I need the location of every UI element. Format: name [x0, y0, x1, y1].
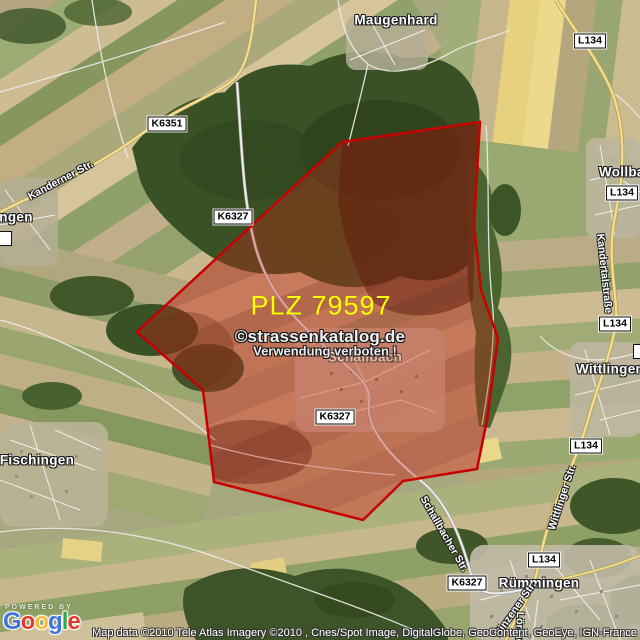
town-label-wittlingen: Wittlingen	[576, 362, 640, 377]
satellite-map-viewport[interactable]: Maugenhard Wollbach Wittlingen Fischinge…	[0, 0, 640, 640]
town-label-partial-ingen: ingen	[0, 210, 33, 225]
village-wittlingen	[570, 342, 640, 437]
road-label-l134-wollbach: L134	[606, 186, 638, 201]
road-label-l134-mid: L134	[599, 317, 631, 332]
town-label-ruemmingen: Rümmingen	[499, 576, 580, 591]
town-label-wollbach: Wollbach	[599, 165, 640, 180]
google-logo[interactable]: Google	[3, 608, 80, 636]
town-label-fischingen: Fischingen	[0, 453, 74, 468]
google-logo-letter: g	[48, 608, 62, 635]
plz-area-title: PLZ 79597	[250, 291, 391, 322]
road-label-k6327-north: K6327	[214, 210, 253, 225]
road-label-l134-wittlingen: L134	[570, 439, 602, 454]
map-attribution: Map data ©2010 Tele Atlas Imagery ©2010 …	[92, 627, 637, 639]
road-label-k6327-south: K6327	[448, 576, 487, 591]
watermark-notice: Verwendung verboten !	[253, 344, 397, 359]
google-logo-letter: G	[3, 608, 21, 635]
road-label-l134-top: L134	[574, 34, 606, 49]
road-label-partial-left	[0, 231, 12, 246]
road-label-k6351: K6351	[148, 117, 187, 132]
town-label-maugenhard: Maugenhard	[354, 13, 437, 28]
google-logo-letter: e	[67, 608, 79, 635]
village-fischingen	[0, 422, 108, 527]
road-label-l134-ruemmingen: L134	[528, 553, 560, 568]
road-label-partial-right	[633, 344, 640, 359]
google-logo-letter: o	[21, 608, 35, 635]
google-logo-letter: o	[34, 608, 48, 635]
road-label-k6327-center: K6327	[316, 410, 355, 425]
